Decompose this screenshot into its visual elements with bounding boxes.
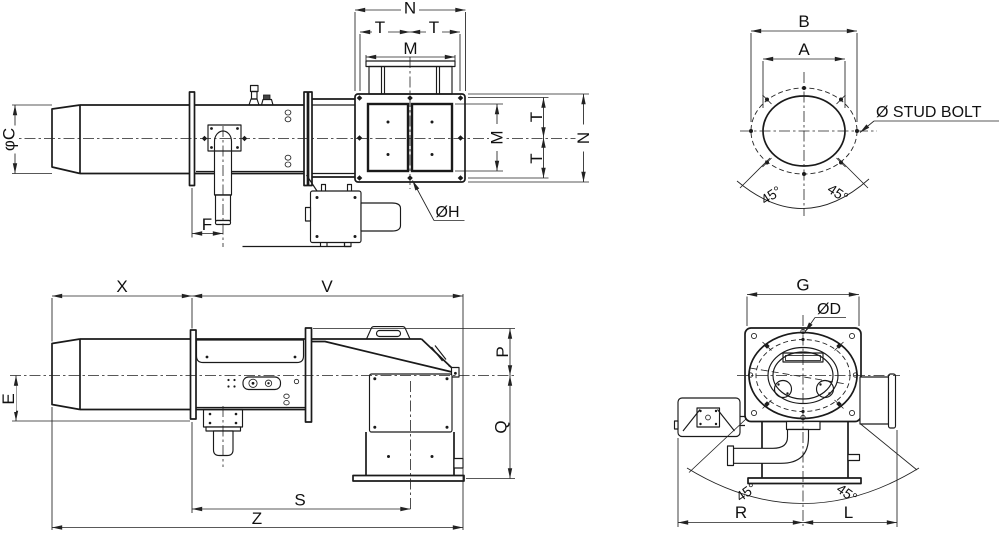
dim-label-T-right-lower: T (527, 153, 546, 163)
dim-label-Z: Z (252, 509, 262, 528)
dim-label-T-top-right: T (429, 18, 439, 37)
fan-housing (312, 327, 460, 377)
air-hood-top-plate (366, 61, 455, 67)
dim-label-N-top: N (404, 0, 416, 18)
dim-label-M-right: M (488, 130, 507, 144)
damper-motor (675, 398, 746, 437)
mounting-plate (355, 57, 465, 189)
igniter-assembly-elevation (204, 406, 243, 467)
dim-label-T-top-left: T (375, 18, 385, 37)
dim-label-R: R (735, 503, 747, 522)
technical-drawing-sheet: N T T M φC F M T T N ØH (0, 0, 1000, 534)
dim-label-B: B (798, 12, 809, 31)
view-flange-front: B A 45° 45° Ø STUD BOLT (737, 12, 999, 216)
dimensions-view2: B A 45° 45° Ø STUD BOLT (737, 12, 999, 209)
dim-label-E: E (0, 393, 18, 404)
callout-label-stud-bolt: Ø STUD BOLT (876, 104, 982, 121)
dim-label-phiC: φC (0, 128, 19, 151)
gas-elbow-pipe (734, 430, 809, 464)
view-side-elevation: X V E P Q S Z (0, 277, 516, 530)
sight-glass (227, 377, 298, 405)
dimensions-view1: N T T M φC F M T T N ØH (0, 0, 593, 238)
angle-label-45-right: 45° (825, 181, 851, 206)
dim-label-X: X (116, 277, 127, 296)
air-damper-cylinder (860, 374, 896, 428)
callout-label-dia-H: ØH (436, 204, 460, 221)
dim-label-G: G (796, 276, 809, 295)
dim-label-M-top: M (403, 39, 417, 58)
callout-label-dia-D: ØD (817, 301, 841, 318)
dim-label-F: F (202, 215, 212, 234)
dim-label-S: S (294, 491, 305, 510)
dim-label-P: P (493, 346, 512, 357)
view-side-top: N T T M φC F M T T N ØH (0, 0, 593, 247)
dim-label-Q: Q (492, 420, 511, 433)
dim-label-N-right: N (574, 132, 593, 144)
dim-label-V: V (321, 277, 333, 296)
air-inlet-box (197, 340, 304, 363)
dim-label-T-right-upper: T (527, 112, 546, 122)
dim-label-L: L (844, 503, 853, 522)
gas-valve-actuator (243, 175, 401, 247)
view-rear: G ØD 45° 45° R L (675, 276, 920, 528)
pipe-fittings (249, 86, 273, 106)
angle-label-45-left: 45° (758, 183, 784, 208)
flange-rear (309, 92, 313, 186)
dim-label-A: A (798, 40, 810, 59)
burner-dimensional-drawing: N T T M φC F M T T N ØH (0, 0, 1000, 534)
